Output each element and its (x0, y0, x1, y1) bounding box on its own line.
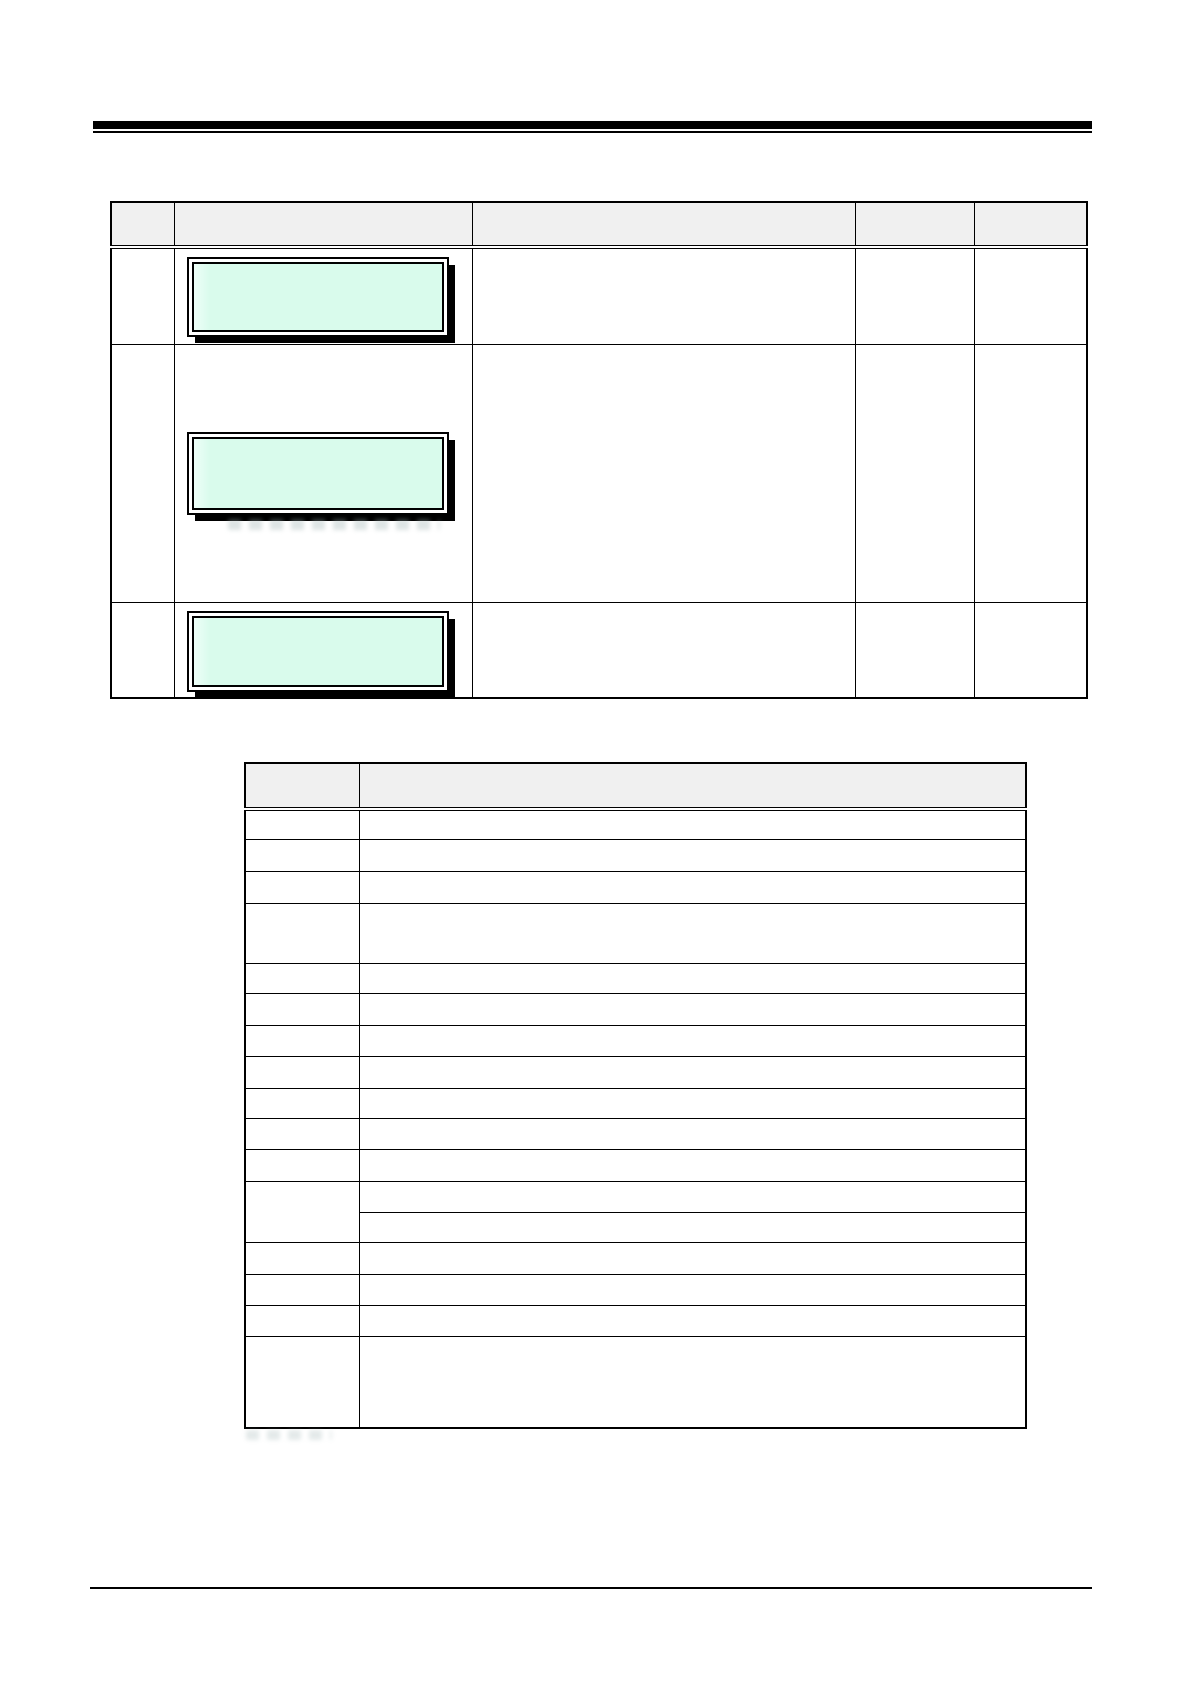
table2-row-4 (245, 903, 1026, 963)
table2-header-cell-2 (359, 763, 1026, 809)
table2-row-7 (245, 1025, 1026, 1056)
table2-cell-r13c2 (359, 1242, 1026, 1274)
table1-cell-r1c1 (111, 247, 174, 344)
table2-row-2 (245, 839, 1026, 871)
table2-cell-r3c1 (245, 871, 359, 903)
table1-header-cell-5 (975, 202, 1087, 247)
table2-cell-r10c2 (359, 1118, 1026, 1149)
table2-row-12a (245, 1181, 1026, 1212)
table1-row-2 (111, 344, 1087, 602)
lcd-screen (192, 262, 444, 332)
table2-cell-r8c1 (245, 1056, 359, 1088)
table2-cell-r5c1 (245, 963, 359, 993)
table1-cell-r2c4 (856, 344, 975, 602)
table2-row-11 (245, 1149, 1026, 1181)
table2-cell-r6c1 (245, 993, 359, 1025)
table2-header-cell-1 (245, 763, 359, 809)
table2-row-3 (245, 871, 1026, 903)
table2-cell-r13c1 (245, 1242, 359, 1274)
table1-header-row (111, 202, 1087, 247)
bottom-rule (90, 1587, 1092, 1589)
table2-cell-r16c1 (245, 1336, 359, 1428)
table2-cell-r9c2 (359, 1088, 1026, 1118)
table2-row-16 (245, 1336, 1026, 1428)
table2-row-14 (245, 1274, 1026, 1305)
table2-cell-r12c1 (245, 1181, 359, 1242)
lcd-display-box (187, 257, 449, 337)
table2-cell-r10c1 (245, 1118, 359, 1149)
table1-header-cell-3 (473, 202, 856, 247)
table2-cell-r11c1 (245, 1149, 359, 1181)
table2-row-5 (245, 963, 1026, 993)
table2-row-8 (245, 1056, 1026, 1088)
table2-row-13 (245, 1242, 1026, 1274)
table2-cell-r2c2 (359, 839, 1026, 871)
table2-cell-r14c1 (245, 1274, 359, 1305)
table2-row-9 (245, 1088, 1026, 1118)
table1-header-cell-1 (111, 202, 174, 247)
table2-cell-r7c1 (245, 1025, 359, 1056)
table2-header-row (245, 763, 1026, 809)
table1-cell-r1c2 (174, 247, 473, 344)
table2-row-12b (245, 1212, 1026, 1242)
table2-cell-r5c2 (359, 963, 1026, 993)
lcd-screen (192, 437, 444, 510)
lcd-display-box (187, 611, 449, 692)
table1-cell-r3c4 (856, 602, 975, 698)
table2-cell-r4c1 (245, 903, 359, 963)
table2-row-10 (245, 1118, 1026, 1149)
table1-row-3 (111, 602, 1087, 698)
table1-cell-r2c1 (111, 344, 174, 602)
table2-row-15 (245, 1305, 1026, 1336)
table1-cell-r1c3 (473, 247, 856, 344)
table1-cell-r2c5 (975, 344, 1087, 602)
table1-cell-r3c5 (975, 602, 1087, 698)
table2-cell-r1c2 (359, 809, 1026, 839)
lcd-menu-table (110, 201, 1088, 699)
table2-cell-r14c2 (359, 1274, 1026, 1305)
table2-row-6 (245, 993, 1026, 1025)
table2-cell-r12c2a (359, 1181, 1026, 1212)
table2-cell-r12c2b (359, 1212, 1026, 1242)
faded-footnote-text (246, 1430, 332, 1440)
faded-caption-text (228, 519, 440, 530)
table1-cell-r1c5 (975, 247, 1087, 344)
table1-cell-r2c3 (473, 344, 856, 602)
table2-cell-r7c2 (359, 1025, 1026, 1056)
table2-cell-r1c1 (245, 809, 359, 839)
table1-cell-r3c3 (473, 602, 856, 698)
table1-cell-r3c2 (174, 602, 473, 698)
table1-cell-r2c2 (174, 344, 473, 602)
document-page (0, 0, 1191, 1684)
parameter-table (244, 762, 1027, 1429)
table1-row-1 (111, 247, 1087, 344)
table2-cell-r2c1 (245, 839, 359, 871)
table2-cell-r8c2 (359, 1056, 1026, 1088)
table2-row-1 (245, 809, 1026, 839)
table2-cell-r6c2 (359, 993, 1026, 1025)
table2-cell-r15c2 (359, 1305, 1026, 1336)
top-rule-thick-bar (93, 121, 1092, 129)
table1-cell-r1c4 (856, 247, 975, 344)
table2-cell-r9c1 (245, 1088, 359, 1118)
table2-cell-r16c2 (359, 1336, 1026, 1428)
table1-cell-r3c1 (111, 602, 174, 698)
lcd-display-box (187, 432, 449, 515)
table2-cell-r3c2 (359, 871, 1026, 903)
table2-cell-r11c2 (359, 1149, 1026, 1181)
lcd-screen (192, 616, 444, 687)
table2-cell-r4c2 (359, 903, 1026, 963)
table1-header-cell-2 (174, 202, 473, 247)
table2-cell-r15c1 (245, 1305, 359, 1336)
top-double-rule (93, 121, 1092, 133)
top-rule-thin-bar (93, 131, 1092, 133)
table1-header-cell-4 (856, 202, 975, 247)
